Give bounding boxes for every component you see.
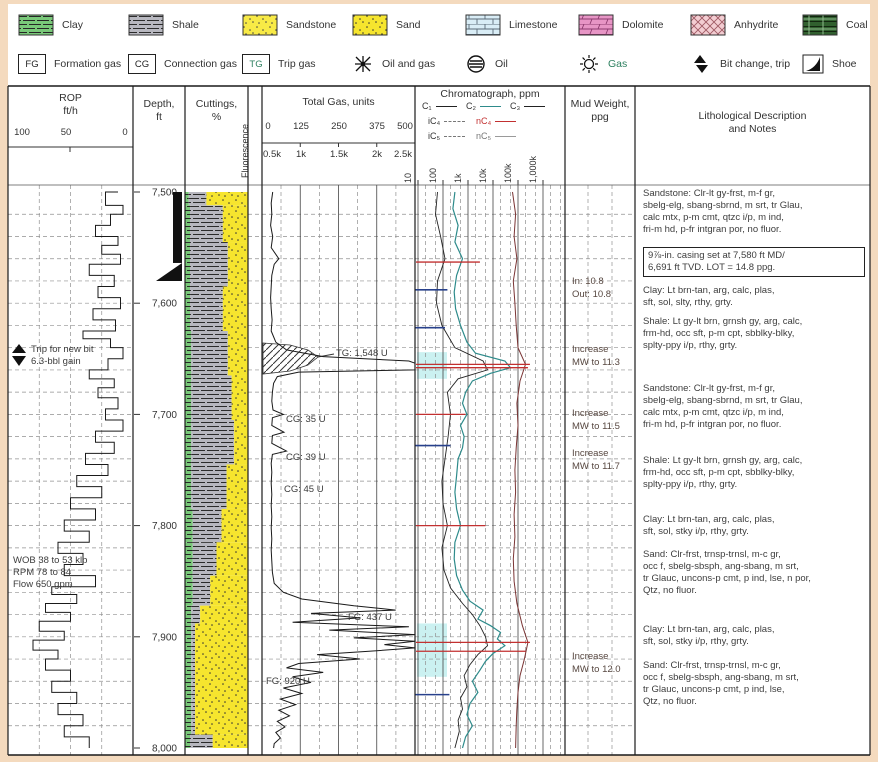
gas-scale1-500: 500	[397, 121, 413, 132]
legend-label: Formation gas	[54, 58, 121, 70]
chromo-legend-ic5: iC₅	[428, 131, 465, 141]
legend-label: Oil	[495, 58, 508, 70]
legend-label: Sandstone	[286, 19, 336, 31]
litho-note-clay: Clay: Lt brn-tan, arg, calc, plas, sft, …	[643, 624, 866, 648]
chromo-tick-100k: 100k	[503, 163, 514, 183]
legend-item-connection-gas: CG Connection gas	[128, 52, 237, 76]
nc4-line-sample	[495, 121, 516, 122]
chromo-tick-1k: 1k	[453, 173, 464, 183]
litho-note-sand: Sand: Clr-frst, trnsp-trnsl, m-c gr, occ…	[643, 660, 866, 708]
shoe-icon	[802, 54, 824, 74]
ic4-line-sample	[444, 121, 465, 122]
gas-scale1-375: 375	[369, 121, 385, 132]
legend-label: Trip gas	[278, 58, 316, 70]
legend-item-sandstone: Sandstone	[242, 13, 336, 37]
total-gas-header: Total Gas, units	[262, 96, 415, 109]
litho-note-shale: Shale: Lt gy-lt brn, grnsh gy, arg, calc…	[643, 316, 866, 352]
rop-header: ROP ft/h	[8, 92, 133, 118]
legend-item-shale: Shale	[128, 13, 199, 37]
rop-tick-0: 0	[122, 127, 127, 138]
legend-item-oil-and-gas: Oil and gas	[352, 52, 435, 76]
c1-line-sample	[436, 106, 457, 107]
c2-label: C₂	[466, 101, 476, 111]
legend-label: Sand	[396, 19, 421, 31]
fg-box-icon: FG	[18, 54, 46, 74]
rop-tick-100: 100	[14, 127, 30, 138]
litho-note-sandstone: Sandstone: Clr-lt gy-frst, m-f gr, sbelg…	[643, 188, 866, 236]
legend-item-shoe: Shoe	[802, 52, 857, 76]
mud-weight-note: Increase MW to 11.3	[572, 343, 620, 369]
legend-label: Clay	[62, 19, 83, 31]
depth-header: Depth, ft	[133, 98, 185, 124]
legend-label: Shoe	[832, 58, 857, 70]
legend-label: Connection gas	[164, 58, 237, 70]
trip-note: Trip for new bit 6.3-bbl gain	[31, 344, 93, 368]
chromo-legend-c2: C₂	[466, 101, 501, 111]
gas-scale2-25k: 2.5k	[394, 149, 412, 160]
gas-icon	[578, 54, 600, 74]
c3-label: C₃	[510, 101, 520, 111]
chromo-tick-10: 10	[403, 173, 414, 183]
gas-scale2-05k: 0.5k	[263, 149, 281, 160]
ic4-label: iC₄	[428, 116, 440, 126]
drilling-params-note: WOB 38 to 53 klb RPM 78 to 84 Flow 650 g…	[13, 555, 87, 591]
legend-item-anhydrite: Anhydrite	[690, 13, 778, 37]
nc5-line-sample	[495, 136, 516, 137]
tg-peak-label: TG: 1,548 U	[336, 348, 388, 360]
cg-peak-label: CG: 39 U	[286, 452, 326, 464]
gas-scale1-125: 125	[293, 121, 309, 132]
chromo-legend-c1: C₁	[422, 101, 457, 111]
legend-item-coal: Coal	[802, 13, 868, 37]
mud-weight-note: Increase MW to 12.0	[572, 650, 621, 676]
chromo-tick-1000k: 1,000k	[528, 156, 539, 183]
casing-note: 9⅞-in. casing set at 7,580 ft MD/ 6,691 …	[643, 247, 865, 277]
cg-peak-label: CG: 35 U	[286, 414, 326, 426]
legend-item-formation-gas: FG Formation gas	[18, 52, 121, 76]
cg-peak-label: CG: 45 U	[284, 484, 324, 496]
ic5-label: iC₅	[428, 131, 440, 141]
legend-item-limestone: Limestone	[465, 13, 557, 37]
mud-log-page: { "legend_lithology": [ {"label":"Clay",…	[0, 0, 878, 762]
legend-item-oil: Oil	[465, 52, 508, 76]
bit-change-trip-icon	[10, 342, 28, 368]
tg-box-icon: TG	[242, 54, 270, 74]
chromo-tick-100: 100	[428, 168, 439, 183]
chromo-tick-10k: 10k	[478, 168, 489, 183]
rop-tick-50: 50	[61, 127, 72, 138]
litho-note-clay: Clay: Lt brn-tan, arg, calc, plas, sft, …	[643, 514, 866, 538]
fg-peak-label: FG: 437 U	[348, 612, 392, 624]
shale-swatch-icon	[128, 14, 164, 36]
nc5-label: nC₅	[476, 131, 491, 141]
gas-scale1-0: 0	[265, 121, 270, 132]
oil-icon	[465, 54, 487, 74]
c2-line-sample	[480, 106, 501, 107]
gas-scale1-250: 250	[331, 121, 347, 132]
sand-swatch-icon	[352, 14, 388, 36]
legend-label: Coal	[846, 19, 868, 31]
dolomite-swatch-icon	[578, 14, 614, 36]
legend-label: Limestone	[509, 19, 557, 31]
legend-item-clay: Clay	[18, 13, 83, 37]
chromo-legend-nc5: nC₅	[476, 131, 516, 141]
cg-box-icon: CG	[128, 54, 156, 74]
sandstone-swatch-icon	[242, 14, 278, 36]
c3-line-sample	[524, 106, 545, 107]
fluorescence-header: Fluorescence	[240, 124, 251, 178]
mud-weight-header: Mud Weight, ppg	[565, 98, 635, 124]
mud-weight-note: Increase MW to 11.5	[572, 407, 620, 433]
fg-peak-label: FG: 920 U	[266, 676, 310, 688]
legend-label: Anhydrite	[734, 19, 778, 31]
gas-scale2-1k: 1k	[296, 149, 306, 160]
mud-weight-note: Increase MW to 11.7	[572, 447, 620, 473]
legend-item-bit-change: Bit change, trip	[690, 52, 790, 76]
coal-swatch-icon	[802, 14, 838, 36]
legend-item-trip-gas: TG Trip gas	[242, 52, 316, 76]
gas-scale2-15k: 1.5k	[330, 149, 348, 160]
legend-item-sand: Sand	[352, 13, 421, 37]
legend-label: Shale	[172, 19, 199, 31]
anhydrite-swatch-icon	[690, 14, 726, 36]
chromo-legend-ic4: iC₄	[428, 116, 465, 126]
gas-scale2-2k: 2k	[372, 149, 382, 160]
rop-title: ROP	[8, 92, 133, 105]
clay-swatch-icon	[18, 14, 54, 36]
legend-label: Dolomite	[622, 19, 663, 31]
limestone-swatch-icon	[465, 14, 501, 36]
litho-note-sandstone: Sandstone: Clr-lt gy-frst, m-f gr, sbelg…	[643, 383, 866, 431]
mud-weight-note: In: 10.8 Out: 10.8	[572, 275, 611, 301]
nc4-label: nC₄	[476, 116, 491, 126]
oil-and-gas-icon	[352, 54, 374, 74]
bit-change-icon	[690, 53, 712, 75]
litho-note-shale: Shale: Lt gy-lt brn, grnsh gy, arg, calc…	[643, 455, 866, 491]
chromo-legend-nc4: nC₄	[476, 116, 516, 126]
legend-item-dolomite: Dolomite	[578, 13, 663, 37]
lithology-header: Lithological Description and Notes	[635, 110, 870, 136]
legend-label: Oil and gas	[382, 58, 435, 70]
chromatograph-header: Chromatograph, ppm	[415, 88, 565, 101]
legend-item-gas: Gas	[578, 52, 627, 76]
cuttings-header: Cuttings, %	[185, 98, 248, 124]
litho-note-sand: Sand: Clr-frst, trnsp-trnsl, m-c gr, occ…	[643, 549, 866, 597]
rop-unit: ft/h	[8, 105, 133, 118]
litho-note-clay: Clay: Lt brn-tan, arg, calc, plas, sft, …	[643, 285, 866, 309]
chromo-legend-c3: C₃	[510, 101, 545, 111]
ic5-line-sample	[444, 136, 465, 137]
legend-label: Gas	[608, 58, 627, 70]
c1-label: C₁	[422, 101, 432, 111]
legend-label: Bit change, trip	[720, 58, 790, 70]
